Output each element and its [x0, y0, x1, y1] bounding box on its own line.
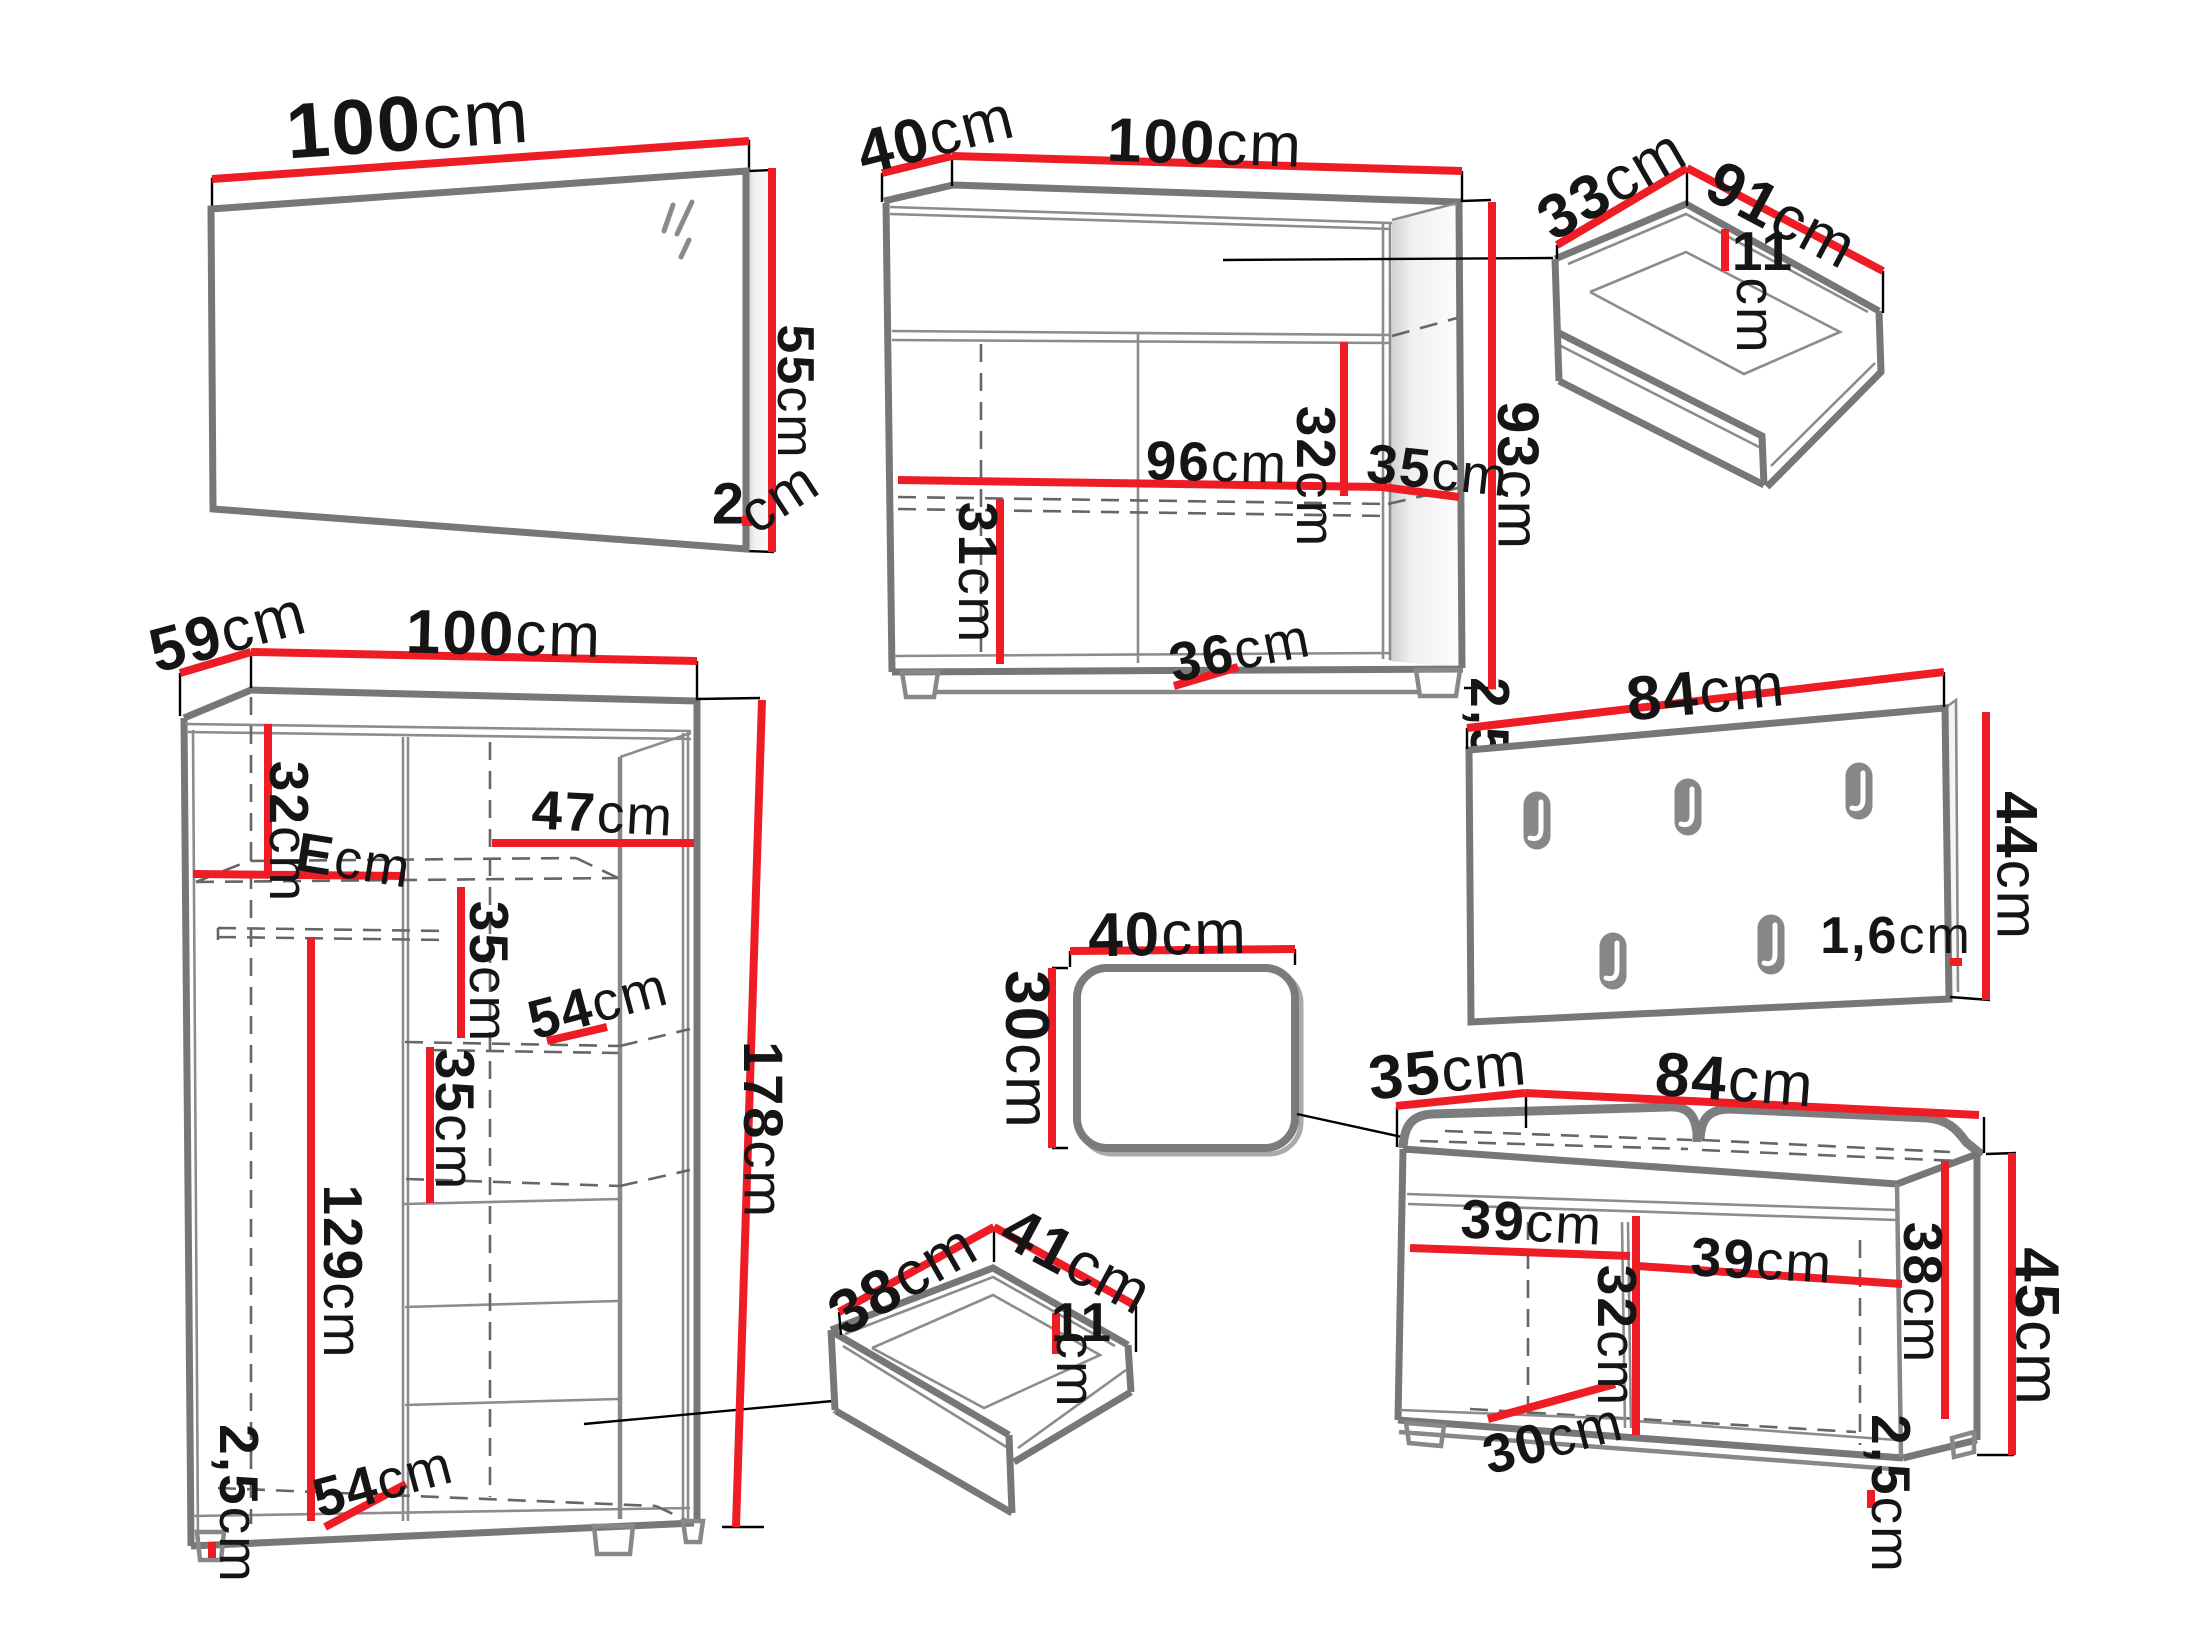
svg-text:178cm: 178cm	[733, 1041, 796, 1219]
svg-text:96cm: 96cm	[1145, 429, 1289, 495]
svg-text:31cm: 31cm	[947, 502, 1009, 645]
svg-text:cm: cm	[1725, 277, 1787, 354]
svg-text:35cm: 35cm	[458, 901, 520, 1044]
svg-text:2,5cm: 2,5cm	[208, 1424, 270, 1584]
svg-text:1,6cm: 1,6cm	[1820, 907, 1972, 965]
svg-text:45cm: 45cm	[2003, 1247, 2072, 1407]
svg-text:100cm: 100cm	[1106, 105, 1304, 181]
svg-text:32cm: 32cm	[1285, 406, 1347, 549]
svg-text:38cm: 38cm	[1892, 1222, 1954, 1365]
svg-text:40cm: 40cm	[1088, 898, 1249, 970]
svg-text:39cm: 39cm	[1689, 1225, 1835, 1294]
svg-text:cm: cm	[1045, 1331, 1107, 1408]
svg-text:100cm: 100cm	[405, 597, 603, 671]
svg-text:39cm: 39cm	[1459, 1187, 1605, 1256]
svg-text:35cm: 35cm	[424, 1049, 486, 1192]
svg-text:32cm: 32cm	[1586, 1265, 1648, 1408]
svg-text:47cm: 47cm	[530, 778, 676, 847]
svg-text:129cm: 129cm	[312, 1184, 374, 1359]
svg-text:100cm: 100cm	[283, 71, 533, 176]
svg-text:55cm: 55cm	[766, 324, 824, 459]
svg-text:44cm: 44cm	[1985, 791, 2050, 941]
svg-text:11: 11	[1732, 220, 1794, 282]
svg-text:30cm: 30cm	[993, 970, 1062, 1130]
svg-text:2,5cm: 2,5cm	[1860, 1414, 1922, 1574]
svg-text:84cm: 84cm	[1653, 1039, 1818, 1120]
